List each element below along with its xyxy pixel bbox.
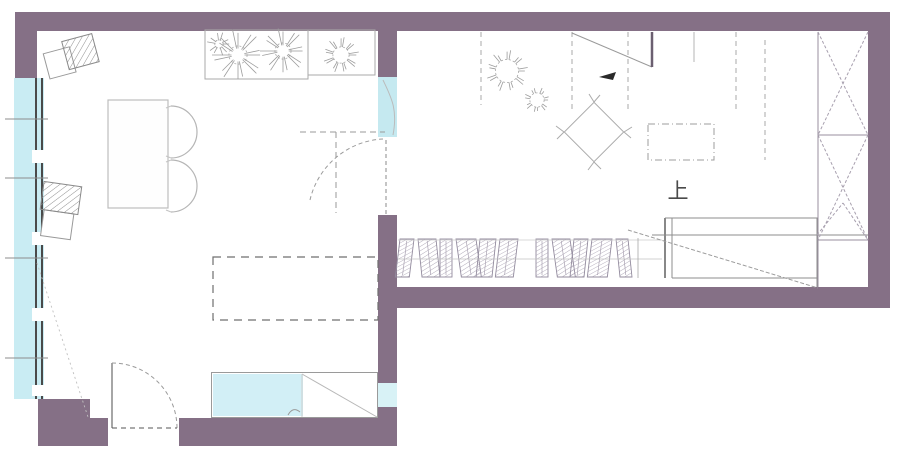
- sink-counter-top: [213, 374, 303, 416]
- planter-shrub: [324, 37, 359, 72]
- shelf-dashed: [648, 124, 714, 160]
- planter-flower-1: [212, 30, 260, 79]
- clothes-rail-lines: [398, 238, 662, 278]
- plan-line-art: [0, 0, 898, 455]
- window-mullion-gap: [32, 308, 47, 321]
- entry-door-swing: [112, 363, 177, 428]
- stairs-up-label: 上: [663, 178, 693, 204]
- wall-divider-upper-stub: [378, 30, 397, 78]
- potted-plant-1: [487, 50, 527, 90]
- wall-divider-below-junction: [378, 308, 397, 383]
- wall-corner-top-left: [15, 12, 37, 78]
- wall-right: [868, 12, 890, 308]
- window-mullion-gap: [32, 150, 47, 163]
- window-small-middle: [378, 383, 397, 407]
- planter-boxes: [205, 30, 375, 79]
- planter-flower-2: [260, 29, 303, 73]
- interior-glass-door: [378, 77, 397, 137]
- wall-top: [15, 12, 890, 31]
- planter-flower-3: [207, 33, 229, 56]
- direction-arrow: [599, 72, 616, 80]
- window-mullion-gap: [32, 385, 47, 396]
- ceiling-fixture-diamond: [556, 94, 632, 170]
- wall-bottom-left-room: [179, 418, 397, 446]
- staircase: [628, 218, 868, 288]
- potted-plant-2: [525, 88, 548, 112]
- hatched-armchair-1: [41, 34, 100, 79]
- floor-plan: 上: [0, 0, 898, 455]
- closet-dashed-lines: [481, 32, 765, 160]
- window-mullion-gap: [32, 232, 47, 245]
- table-with-chairs: [108, 100, 197, 212]
- wall-bottom-left-block: [38, 399, 90, 446]
- wall-bottom-left-jamb: [90, 418, 108, 446]
- sink-counter: [211, 372, 378, 418]
- overhead-cabinet-dashed: [213, 257, 378, 320]
- hanging-clothes: [395, 239, 632, 277]
- tall-cabinet-x-doors: [817, 32, 868, 287]
- wall-bottom-right-room: [378, 287, 890, 308]
- wall-divider-lower-stub: [378, 215, 397, 310]
